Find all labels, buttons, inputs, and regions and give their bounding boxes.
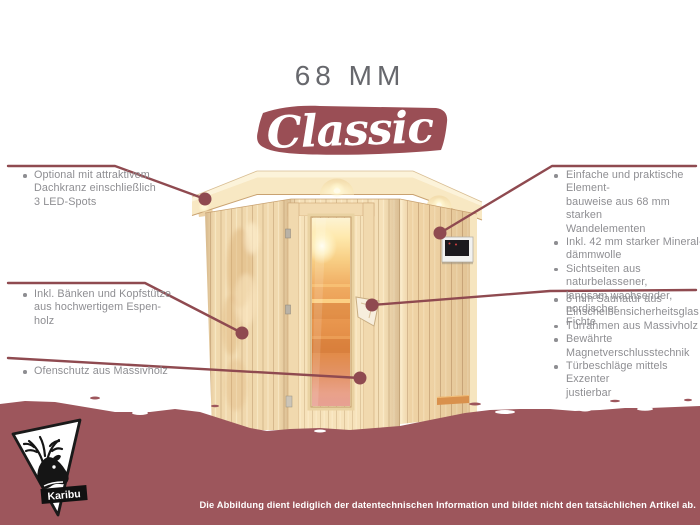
bullet-item: Inkl. 42 mm starker Mineral- dämmwolle	[552, 236, 700, 263]
bullet-item: Ofenschutz aus Massivholz	[21, 365, 211, 378]
door-hinge-top	[286, 229, 291, 238]
round-bullet	[552, 236, 566, 263]
annotation-line: bauweise aus 68 mm starken	[566, 196, 700, 223]
annotation-line: Türbeschläge mittels Exzenter	[566, 360, 700, 387]
sauna-door	[286, 203, 380, 430]
leader-dot-ovenguard	[354, 372, 367, 385]
annotation-line: Einfache und praktische Element-	[566, 169, 700, 196]
leader-dot-roof	[199, 193, 212, 206]
infographic-page: Classic	[0, 0, 700, 525]
bullet-item: Inkl. Bänken und Kopfstütze aus hochwert…	[21, 288, 191, 328]
annotation-line: holz	[34, 315, 191, 328]
round-bullet	[21, 169, 34, 209]
annotation-line: dämmwolle	[566, 249, 700, 262]
leader-dot-bench	[236, 327, 249, 340]
banner-script-label: Classic	[266, 102, 435, 159]
annotation-group-left-top: Optional mit attraktivem Dachkranz einsc…	[21, 169, 181, 209]
annotation-line: Einscheibensicherheitsglas	[566, 306, 700, 319]
bullet-item: Einfache und praktische Element- bauweis…	[552, 169, 700, 236]
annotation-line: 3 LED-Spots	[34, 196, 181, 209]
annotation-line: Inkl. Bänken und Kopfstütze	[34, 288, 191, 301]
annotation-line: Wandelementen	[566, 223, 700, 236]
annotation-line: Inkl. 42 mm starker Mineral-	[566, 236, 700, 249]
annotation-line: Türrahmen aus Massivholz	[566, 320, 700, 333]
footer-disclaimer: Die Abbildung dient lediglich der datent…	[199, 500, 696, 510]
annotation-line: 8 mm Saunatür aus	[566, 293, 700, 306]
annotation-group-left-middle: Inkl. Bänken und Kopfstütze aus hochwert…	[21, 288, 191, 328]
leader-dot-walls	[434, 227, 447, 240]
sauna-left-wall	[205, 195, 295, 435]
annotation-line: Dachkranz einschließlich	[34, 182, 181, 195]
annotation-line: aus hochwertigem Espen-	[34, 301, 191, 314]
round-bullet	[21, 288, 34, 328]
bullet-item: 8 mm Saunatür aus Einscheibensicherheits…	[552, 293, 700, 320]
annotation-line: justierbar	[566, 387, 700, 400]
round-bullet	[552, 333, 566, 360]
round-bullet	[552, 360, 566, 400]
magnetic-latch	[286, 396, 292, 407]
round-bullet	[21, 365, 34, 378]
annotation-line: Sichtseiten aus naturbelassener,	[566, 263, 700, 290]
bullet-item: Optional mit attraktivem Dachkranz einsc…	[21, 169, 181, 209]
round-bullet	[552, 169, 566, 236]
sauna-illustration	[192, 171, 482, 435]
annotation-line: Ofenschutz aus Massivholz	[34, 365, 211, 378]
round-bullet	[552, 320, 566, 333]
door-hinge-bottom	[286, 305, 291, 314]
annotation-group-left-bottom: Ofenschutz aus Massivholz	[21, 365, 211, 378]
bullet-item: Türrahmen aus Massivholz	[552, 320, 700, 333]
annotation-line: Optional mit attraktivem	[34, 169, 181, 182]
leader-dot-door	[366, 299, 379, 312]
annotation-group-right-bottom: 8 mm Saunatür aus Einscheibensicherheits…	[552, 293, 700, 400]
page-title: 68 MM	[0, 60, 700, 92]
sauna-control-panel	[442, 237, 473, 264]
bullet-item: Bewährte Magnetverschlusstechnik	[552, 333, 700, 360]
round-bullet	[552, 293, 566, 320]
annotation-line: Bewährte Magnetverschlusstechnik	[566, 333, 700, 360]
classic-banner: Classic	[257, 102, 447, 159]
bullet-item: Türbeschläge mittels Exzenter justierbar	[552, 360, 700, 400]
